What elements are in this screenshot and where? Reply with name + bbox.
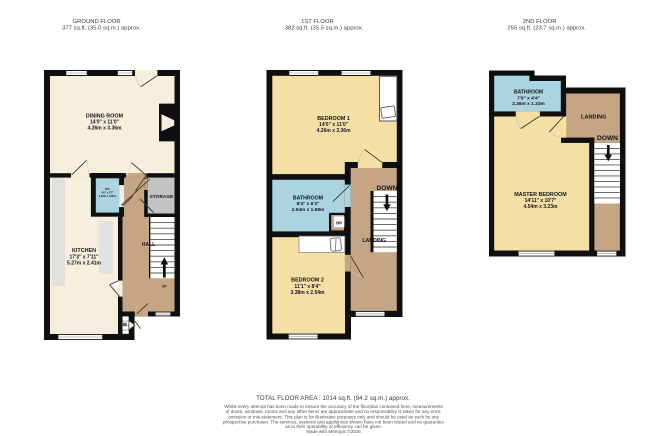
svg-text:BATHROOM: BATHROOM (514, 90, 543, 96)
svg-text:2.54m x 1.88m: 2.54m x 1.88m (292, 207, 325, 213)
svg-text:LANDING: LANDING (581, 115, 606, 121)
svg-text:382 sq.ft. (35.5 sq.m.) approx: 382 sq.ft. (35.5 sq.m.) approx. (285, 26, 364, 32)
svg-text:17'3" x 7'11": 17'3" x 7'11" (69, 254, 99, 260)
svg-text:2.36m x 1.33m: 2.36m x 1.33m (512, 101, 545, 107)
svg-text:5.27m x 2.41m: 5.27m x 2.41m (67, 260, 101, 266)
svg-text:14'0" x 11'0": 14'0" x 11'0" (90, 120, 120, 126)
svg-text:377 sq.ft. (35.0 sq.m.) approx: 377 sq.ft. (35.0 sq.m.) approx. (62, 26, 141, 32)
svg-text:4.54m x 3.23m: 4.54m x 3.23m (524, 204, 558, 210)
svg-text:KITCHEN: KITCHEN (72, 248, 96, 254)
svg-text:UP: UP (162, 285, 167, 289)
svg-text:4.26m x 3.36m: 4.26m x 3.36m (317, 128, 351, 134)
svg-text:DINING ROOM: DINING ROOM (86, 114, 124, 120)
svg-text:BEDROOM 2: BEDROOM 2 (291, 278, 324, 284)
svg-text:LANDING: LANDING (362, 238, 386, 244)
svg-text:4'0" x 2'7": 4'0" x 2'7" (101, 191, 114, 195)
svg-text:BEDROOM 1: BEDROOM 1 (317, 116, 350, 122)
svg-text:8'4" x 6'2": 8'4" x 6'2" (297, 201, 320, 207)
svg-text:Made with Metropix ©2026: Made with Metropix ©2026 (306, 428, 361, 434)
svg-text:7'9" x 4'4": 7'9" x 4'4" (517, 95, 540, 101)
svg-text:11'1" x 8'4": 11'1" x 8'4" (294, 284, 321, 290)
svg-text:DOWN: DOWN (376, 185, 397, 192)
svg-text:3.38m x 2.54m: 3.38m x 2.54m (291, 290, 325, 296)
svg-text:HALL: HALL (142, 242, 155, 248)
svg-text:4.26m x 3.36m: 4.26m x 3.36m (88, 126, 122, 132)
svg-text:TOTAL FLOOR AREA : 1014 sq.ft.: TOTAL FLOOR AREA : 1014 sq.ft. (94.2 sq.… (256, 395, 410, 402)
svg-text:255 sq.ft. (23.7 sq.m.) approx: 255 sq.ft. (23.7 sq.m.) approx. (507, 26, 586, 32)
svg-text:14'0" x 11'0": 14'0" x 11'0" (319, 122, 349, 128)
svg-text:2ND FLOOR: 2ND FLOOR (523, 19, 557, 25)
svg-text:DOWN: DOWN (597, 135, 618, 142)
svg-text:HP: HP (336, 221, 342, 226)
svg-text:1.22m x 0.80m: 1.22m x 0.80m (99, 194, 117, 198)
svg-text:STORAGE: STORAGE (150, 194, 174, 200)
svg-text:1ST FLOOR: 1ST FLOOR (301, 19, 334, 25)
svg-text:WC: WC (105, 187, 110, 191)
svg-text:BATHROOM: BATHROOM (293, 195, 323, 201)
svg-text:GROUND FLOOR: GROUND FLOOR (73, 19, 121, 25)
